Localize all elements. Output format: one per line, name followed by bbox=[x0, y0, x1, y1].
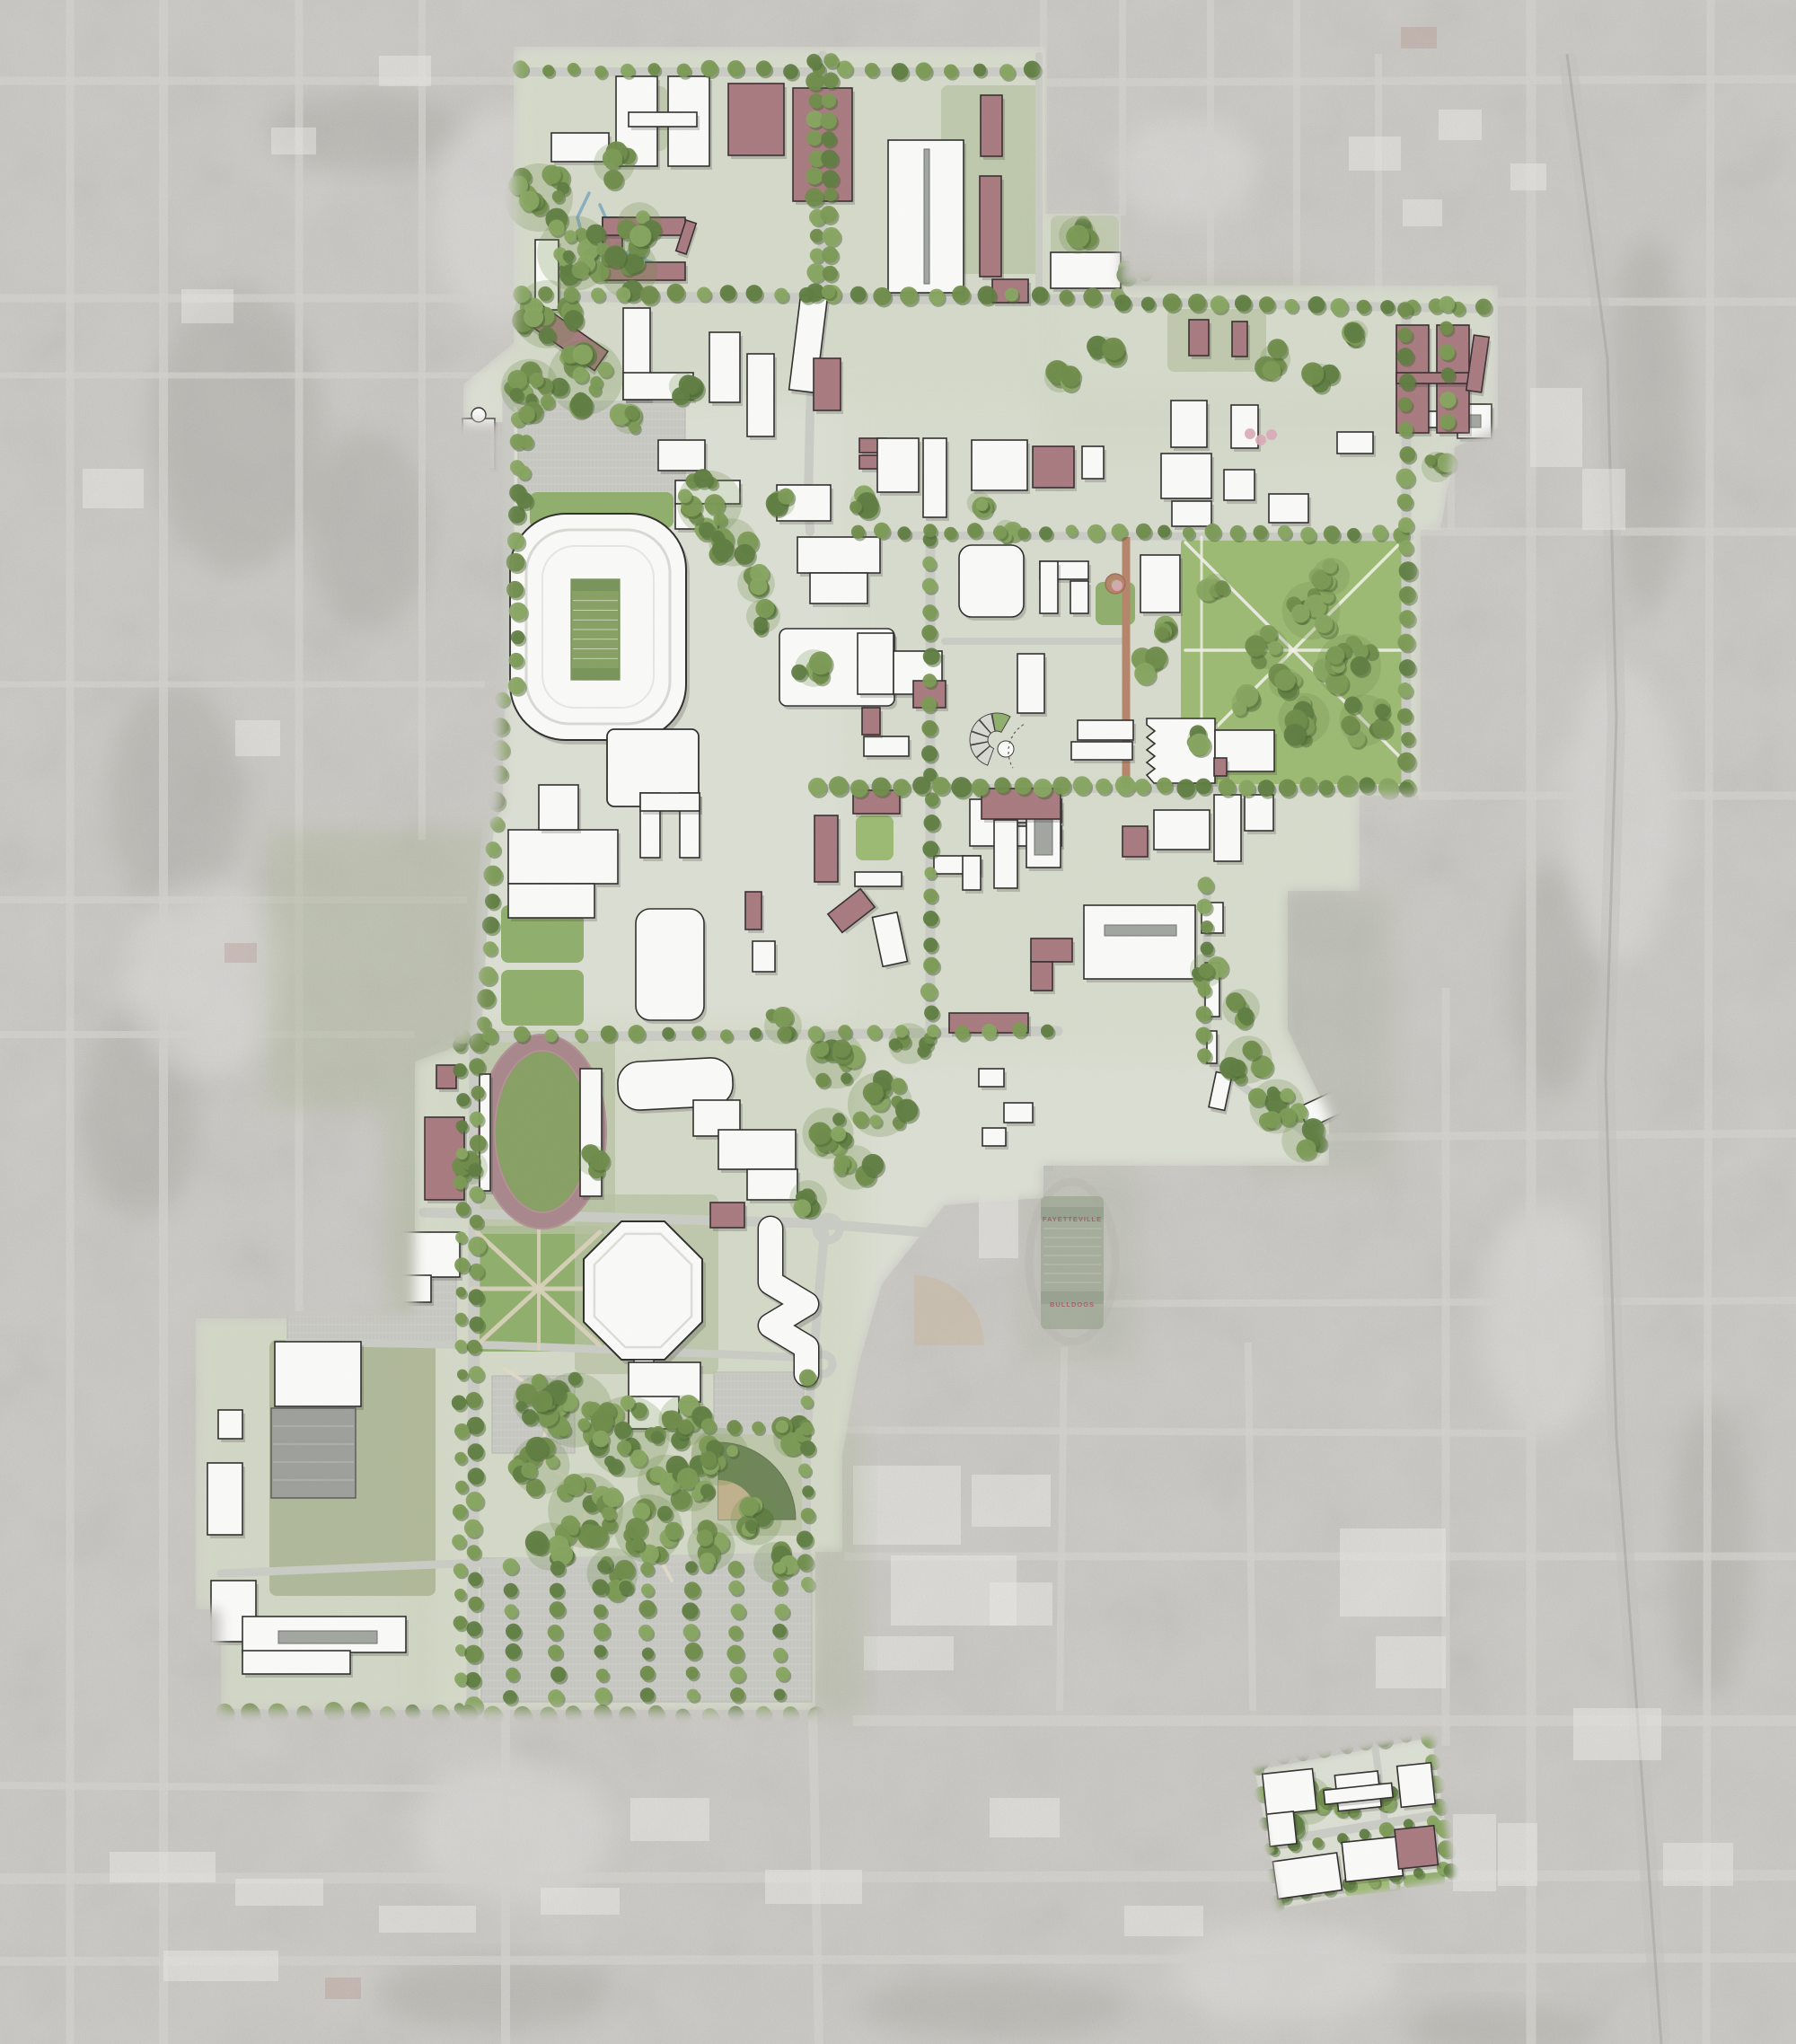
global-grain bbox=[0, 0, 1796, 2044]
endzone-label-south: BULLDOGS bbox=[1050, 1300, 1095, 1308]
endzone-label-north: FAYETTEVILLE bbox=[1043, 1215, 1102, 1223]
campus-master-plan-map: FAYETTEVILLE BULLDOGS bbox=[0, 0, 1796, 2044]
aerial-map-canvas: FAYETTEVILLE BULLDOGS bbox=[0, 0, 1796, 2044]
map-render-layers bbox=[0, 0, 1796, 2044]
